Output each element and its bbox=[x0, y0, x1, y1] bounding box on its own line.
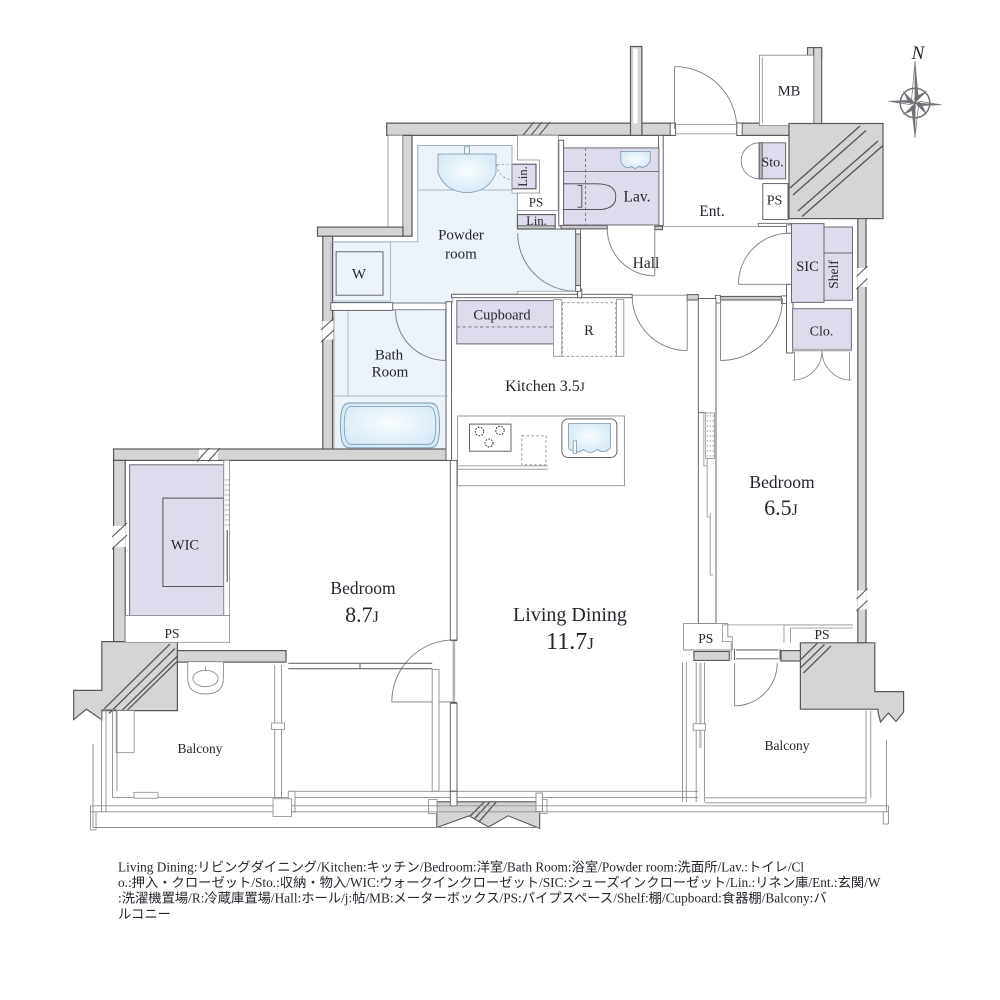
svg-text:Living Dining: Living Dining bbox=[513, 604, 627, 626]
svg-text:Hall: Hall bbox=[633, 255, 660, 272]
svg-text:W: W bbox=[352, 267, 367, 283]
svg-text:ルコニー: ルコニー bbox=[118, 906, 171, 921]
svg-text:Ent.: Ent. bbox=[699, 203, 724, 220]
svg-text:PS: PS bbox=[529, 195, 543, 210]
svg-text:MB: MB bbox=[778, 84, 801, 100]
svg-text:PS: PS bbox=[698, 631, 713, 646]
svg-text:Bedroom: Bedroom bbox=[749, 472, 815, 492]
svg-text:Powder: Powder bbox=[438, 228, 484, 244]
svg-text:o.:押入・クローゼット/Sto.:収納・物入/WIC:ウォ: o.:押入・クローゼット/Sto.:収納・物入/WIC:ウォークインクローゼット… bbox=[118, 874, 881, 890]
svg-text:Balcony: Balcony bbox=[765, 738, 810, 753]
svg-text:SIC: SIC bbox=[796, 259, 819, 275]
svg-text::洗濯機置場/R:冷蔵庫置場/Hall:ホール/j:帖/MB: :洗濯機置場/R:冷蔵庫置場/Hall:ホール/j:帖/MB:メーターボックス/… bbox=[118, 890, 827, 906]
svg-text:Sto.: Sto. bbox=[761, 156, 783, 171]
svg-text:Clo.: Clo. bbox=[810, 325, 834, 340]
svg-text:N: N bbox=[911, 43, 926, 64]
svg-text:WIC: WIC bbox=[171, 538, 199, 554]
svg-text:room: room bbox=[445, 247, 477, 263]
svg-text:Living Dining:リビングダイニング/Kitche: Living Dining:リビングダイニング/Kitchen:キッチン/Bed… bbox=[118, 859, 804, 875]
svg-text:PS: PS bbox=[164, 626, 179, 641]
svg-text:R: R bbox=[584, 323, 594, 339]
svg-text:Lav.: Lav. bbox=[624, 189, 651, 206]
svg-text:Room: Room bbox=[372, 365, 409, 381]
svg-text:Balcony: Balcony bbox=[178, 741, 223, 756]
svg-text:Bedroom: Bedroom bbox=[330, 578, 396, 598]
svg-text:Lin.: Lin. bbox=[526, 214, 546, 228]
svg-text:Shelf: Shelf bbox=[826, 260, 841, 289]
svg-text:PS: PS bbox=[767, 194, 783, 209]
svg-text:Bath: Bath bbox=[375, 348, 404, 364]
svg-text:Lin.: Lin. bbox=[516, 166, 530, 186]
svg-text:PS: PS bbox=[814, 627, 829, 642]
svg-text:11.7J: 11.7J bbox=[546, 629, 594, 655]
svg-text:Cupboard: Cupboard bbox=[473, 308, 531, 324]
svg-text:Kitchen 3.5J: Kitchen 3.5J bbox=[505, 378, 585, 395]
